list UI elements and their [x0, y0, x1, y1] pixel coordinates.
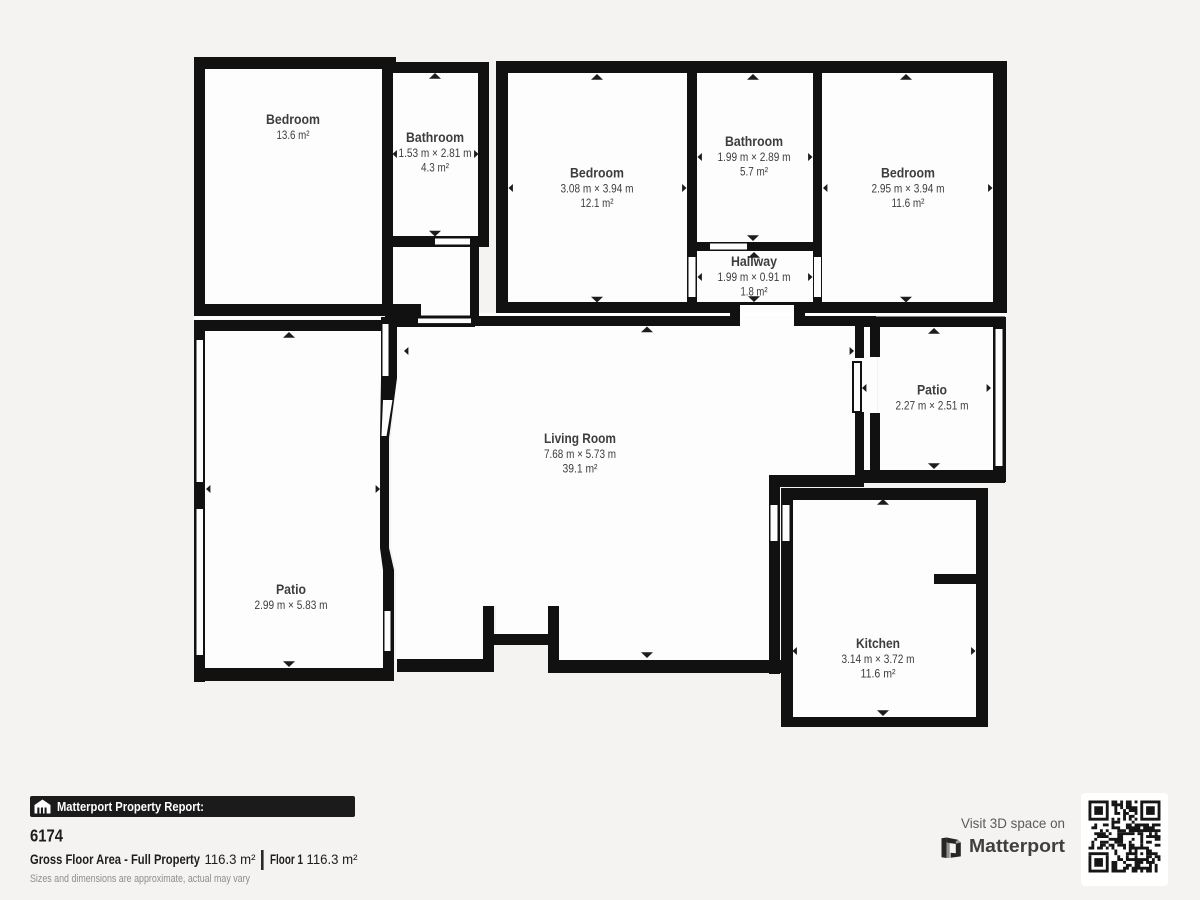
- svg-text:11.6 m²: 11.6 m²: [861, 667, 896, 681]
- svg-text:4.3 m²: 4.3 m²: [421, 161, 449, 175]
- svg-text:Bedroom: Bedroom: [881, 165, 935, 181]
- svg-text:Kitchen: Kitchen: [856, 635, 900, 651]
- svg-text:12.1 m²: 12.1 m²: [581, 196, 614, 210]
- svg-text:Bedroom: Bedroom: [266, 111, 320, 127]
- svg-text:2.27 m × 2.51 m: 2.27 m × 2.51 m: [896, 399, 969, 413]
- svg-text:1.99 m × 2.89 m: 1.99 m × 2.89 m: [718, 150, 791, 164]
- svg-text:Living Room: Living Room: [544, 430, 616, 446]
- svg-text:Sizes and dimensions are appro: Sizes and dimensions are approximate, ac…: [30, 873, 250, 885]
- svg-text:Matterport: Matterport: [969, 835, 1065, 856]
- svg-text:1.53 m × 2.81 m: 1.53 m × 2.81 m: [399, 146, 472, 160]
- svg-text:Bathroom: Bathroom: [725, 133, 783, 149]
- svg-text:5.7 m²: 5.7 m²: [740, 165, 768, 179]
- svg-text:7.68 m × 5.73 m: 7.68 m × 5.73 m: [544, 447, 616, 461]
- svg-text:1.99 m × 0.91 m: 1.99 m × 0.91 m: [718, 270, 791, 284]
- svg-text:Gross Floor Area - Full Proper: Gross Floor Area - Full Property: [30, 852, 200, 867]
- svg-text:6174: 6174: [30, 826, 63, 846]
- svg-text:39.1 m²: 39.1 m²: [563, 462, 598, 476]
- svg-text:Bathroom: Bathroom: [406, 129, 464, 145]
- svg-text:Visit 3D space on: Visit 3D space on: [961, 815, 1065, 831]
- svg-text:Bedroom: Bedroom: [570, 165, 624, 181]
- svg-text:3.14 m × 3.72 m: 3.14 m × 3.72 m: [842, 652, 915, 666]
- svg-text:Patio: Patio: [917, 382, 947, 398]
- svg-text:3.08 m × 3.94 m: 3.08 m × 3.94 m: [561, 182, 634, 196]
- svg-text:2.99 m × 5.83 m: 2.99 m × 5.83 m: [255, 598, 328, 612]
- svg-text:Floor 1: Floor 1: [270, 852, 303, 867]
- svg-text:11.6 m²: 11.6 m²: [892, 196, 925, 210]
- svg-text:116.3 m²: 116.3 m²: [205, 852, 256, 867]
- svg-text:13.6 m²: 13.6 m²: [277, 128, 310, 142]
- svg-text:Matterport Property Report:: Matterport Property Report:: [57, 800, 204, 814]
- svg-text:Patio: Patio: [276, 581, 306, 597]
- svg-text:116.3 m²: 116.3 m²: [307, 852, 358, 867]
- svg-text:2.95 m × 3.94 m: 2.95 m × 3.94 m: [872, 182, 945, 196]
